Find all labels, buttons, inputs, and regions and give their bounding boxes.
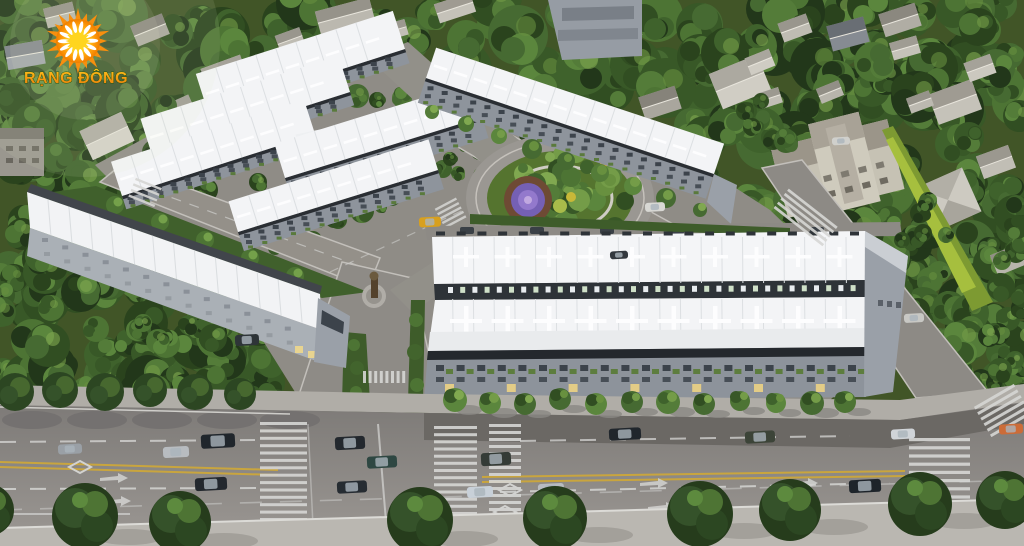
svg-text:RẠNG ĐÔNG: RẠNG ĐÔNG [24, 68, 128, 87]
